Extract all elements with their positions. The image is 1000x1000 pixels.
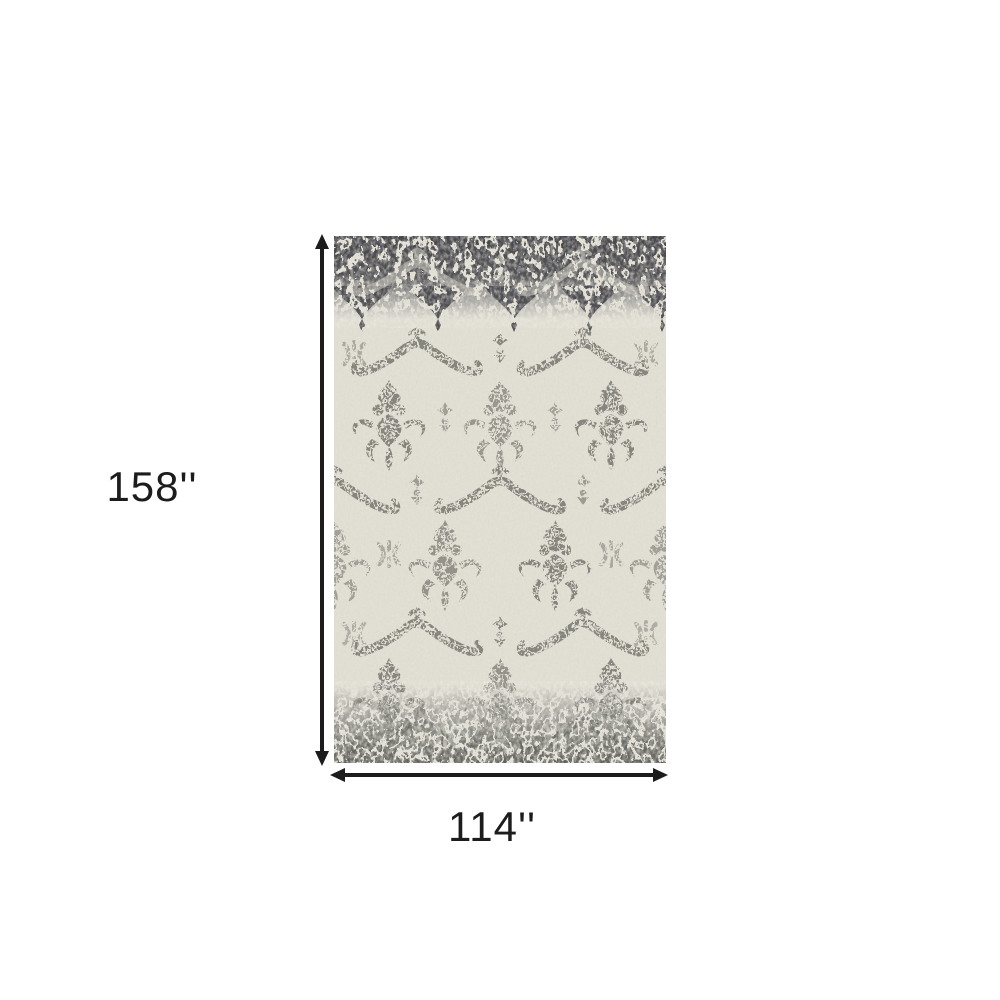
product-dimension-diagram: 158'' 114'': [0, 0, 1000, 1000]
arrowhead-down-icon: [315, 751, 329, 766]
width-arrow-line: [339, 773, 659, 777]
height-dimension-arrow: [315, 234, 329, 766]
width-dimension-label: 114'': [382, 806, 602, 848]
rug-image: [334, 236, 666, 763]
height-dimension-label: 158'': [42, 466, 262, 508]
rug-top-band-wear: [334, 236, 666, 328]
rug-bottom-band-wear: [334, 681, 666, 763]
rug-graphic: [334, 236, 666, 763]
width-dimension-arrow: [330, 768, 668, 782]
arrowhead-right-icon: [653, 768, 668, 782]
height-arrow-line: [320, 243, 324, 757]
